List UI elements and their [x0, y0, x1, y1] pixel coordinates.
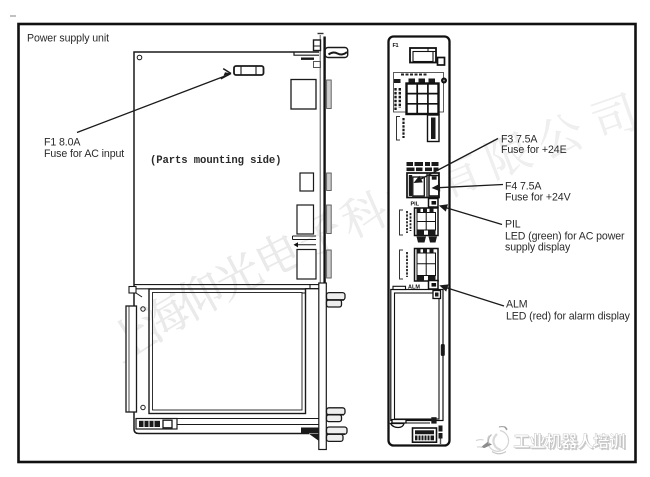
- svg-text:PIL: PIL: [505, 219, 521, 231]
- svg-text:PIL: PIL: [411, 202, 420, 208]
- svg-text:(Parts mounting side): (Parts mounting side): [150, 155, 281, 167]
- svg-text:Power supply unit: Power supply unit: [27, 33, 109, 45]
- svg-text:supply display: supply display: [505, 242, 571, 254]
- svg-text:Fuse for +24E: Fuse for +24E: [501, 144, 567, 156]
- svg-text:LED (red) for alarm display: LED (red) for alarm display: [506, 311, 631, 323]
- svg-text:F1 8.0A: F1 8.0A: [44, 137, 81, 149]
- svg-text:ALM: ALM: [506, 299, 527, 311]
- svg-text:Fuse for +24V: Fuse for +24V: [505, 192, 572, 204]
- svg-text:F1: F1: [393, 43, 399, 49]
- svg-text:Fuse for AC input: Fuse for AC input: [44, 148, 124, 160]
